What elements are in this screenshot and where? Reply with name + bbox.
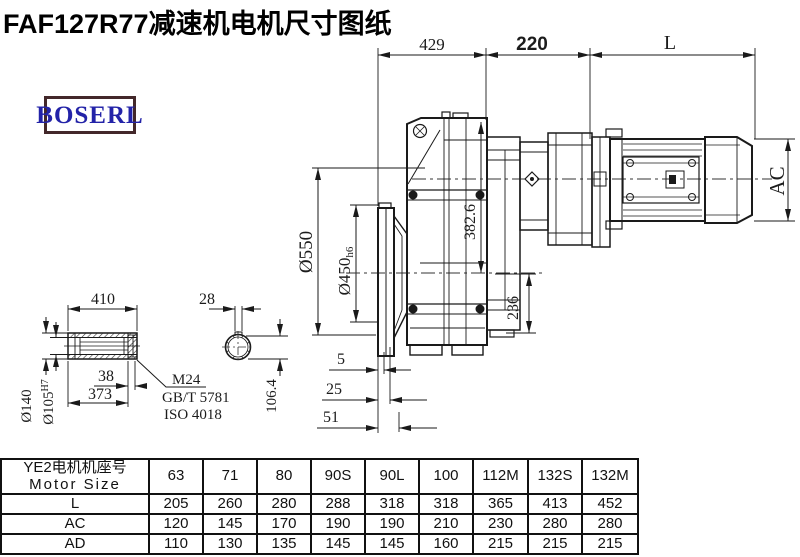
dim-5-label: 5 xyxy=(337,351,345,368)
bolt-icon xyxy=(476,305,484,313)
cell-L-112M: 365 xyxy=(473,494,528,514)
output-flange-group xyxy=(378,203,407,356)
motor-size-table: YE2电机机座号 Motor Size 63 71 80 90S 90L 100… xyxy=(0,458,639,555)
col-header-132S: 132S xyxy=(528,459,582,494)
dim-25-label: 25 xyxy=(326,381,342,398)
cell-L-132S: 413 xyxy=(528,494,582,514)
cell-AC-132S: 280 xyxy=(528,514,582,534)
cell-AD-132S: 215 xyxy=(528,534,582,554)
dimension-lines xyxy=(46,55,788,428)
dim-382-label: 382.6 xyxy=(462,204,479,240)
cell-AD-80: 135 xyxy=(257,534,311,554)
dim-140-label: Ø140 xyxy=(19,389,35,422)
cell-AC-100: 210 xyxy=(419,514,473,534)
bolt-icon xyxy=(476,191,484,199)
dim-106-label: 106.4 xyxy=(264,379,280,413)
motor-group xyxy=(592,129,752,247)
row-label-AD: AD xyxy=(1,534,149,554)
bolt-icon xyxy=(409,305,417,313)
cell-AC-71: 145 xyxy=(203,514,257,534)
motor-fins xyxy=(623,144,702,216)
dim-38-label: 38 xyxy=(98,368,114,385)
dim-L-label: L xyxy=(664,32,676,54)
cell-AD-63: 110 xyxy=(149,534,203,554)
cell-AD-112M: 215 xyxy=(473,534,528,554)
col-header-90S: 90S xyxy=(311,459,365,494)
cell-L-100: 318 xyxy=(419,494,473,514)
cell-AC-63: 120 xyxy=(149,514,203,534)
extension-lines xyxy=(42,48,795,433)
row-label-AC: AC xyxy=(1,514,149,534)
cell-AC-80: 170 xyxy=(257,514,311,534)
bolt-icon xyxy=(409,191,417,199)
cell-L-63: 205 xyxy=(149,494,203,514)
note-gb-label: GB/T 5781 xyxy=(162,390,230,406)
table-header-motor-size: YE2电机机座号 Motor Size xyxy=(1,459,149,494)
cell-AD-100: 160 xyxy=(419,534,473,554)
cell-AC-112M: 230 xyxy=(473,514,528,534)
dim-373-label: 373 xyxy=(88,386,112,403)
table-row-AD: AD 110 130 135 145 145 160 215 215 215 xyxy=(1,534,638,554)
dim-51-label: 51 xyxy=(323,409,339,426)
table-header-cn: YE2电机机座号 xyxy=(2,460,148,477)
dim-410-label: 410 xyxy=(91,291,115,308)
note-iso-label: ISO 4018 xyxy=(164,407,222,423)
shaft-detail-group xyxy=(64,333,140,359)
drawing-page: FAF127R77减速机电机尺寸图纸 BOSERL xyxy=(0,0,800,557)
table-row-L: L 205 260 280 288 318 318 365 413 452 xyxy=(1,494,638,514)
cell-AC-132M: 280 xyxy=(582,514,638,534)
dim-236-label: 236 xyxy=(505,296,522,320)
table-header-en: Motor Size xyxy=(2,477,148,494)
cell-L-71: 260 xyxy=(203,494,257,514)
col-header-132M: 132M xyxy=(582,459,638,494)
dim-28-label: 28 xyxy=(199,291,215,308)
dim-450h6-label: Ø450h6 xyxy=(335,246,356,295)
dim-429-label: 429 xyxy=(419,35,445,54)
note-m24-label: M24 xyxy=(172,372,201,388)
cell-AD-71: 130 xyxy=(203,534,257,554)
dim-AC-label: AC xyxy=(765,166,789,195)
col-header-100: 100 xyxy=(419,459,473,494)
r77-stage-group xyxy=(487,133,592,337)
col-header-80: 80 xyxy=(257,459,311,494)
fan-cover xyxy=(705,137,752,223)
col-header-71: 71 xyxy=(203,459,257,494)
col-header-90L: 90L xyxy=(365,459,419,494)
cell-L-132M: 452 xyxy=(582,494,638,514)
col-header-112M: 112M xyxy=(473,459,528,494)
cell-L-90S: 288 xyxy=(311,494,365,514)
cell-AD-132M: 215 xyxy=(582,534,638,554)
cell-AC-90L: 190 xyxy=(365,514,419,534)
cell-L-90L: 318 xyxy=(365,494,419,514)
cell-L-80: 280 xyxy=(257,494,311,514)
row-label-L: L xyxy=(1,494,149,514)
table-row-AC: AC 120 145 170 190 190 210 230 280 280 xyxy=(1,514,638,534)
dim-220-label: 220 xyxy=(516,34,548,55)
cell-AD-90L: 145 xyxy=(365,534,419,554)
dim-550-label: Ø550 xyxy=(296,231,317,273)
dim-105H7-label: Ø105H7 xyxy=(40,379,57,425)
cell-AC-90S: 190 xyxy=(311,514,365,534)
cell-AD-90S: 145 xyxy=(311,534,365,554)
col-header-63: 63 xyxy=(149,459,203,494)
